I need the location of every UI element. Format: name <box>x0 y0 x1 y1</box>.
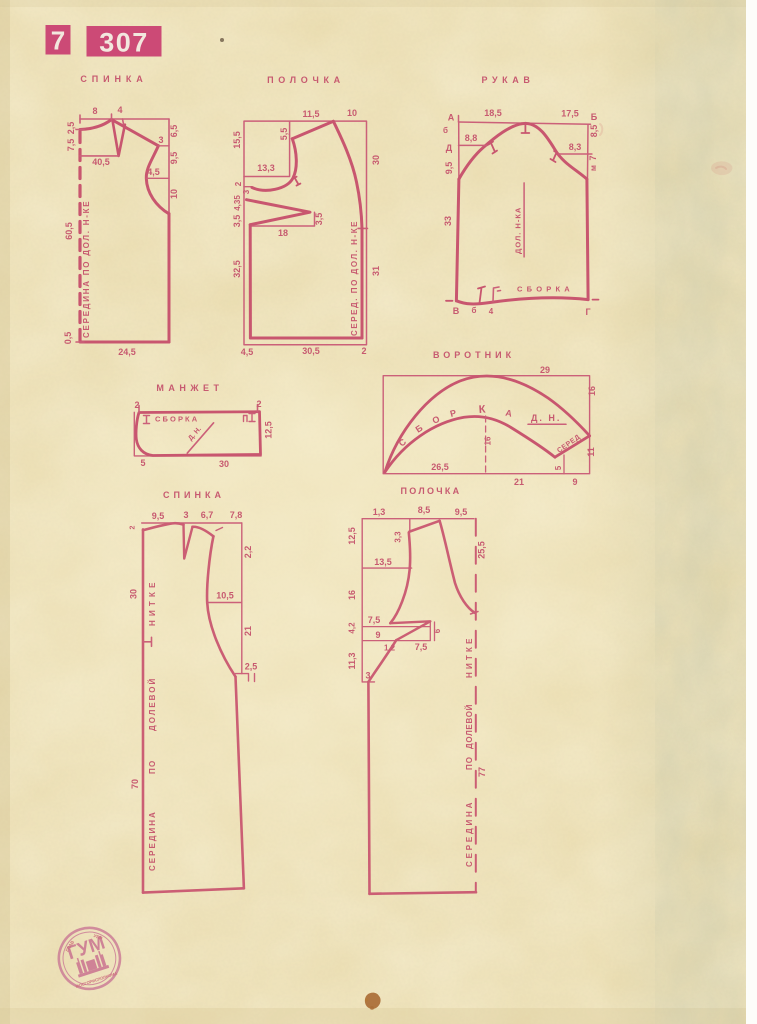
svg-text:НИТКЕ: НИТКЕ <box>148 578 157 626</box>
svg-text:10: 10 <box>169 189 179 199</box>
svg-text:31: 31 <box>371 266 381 276</box>
svg-text:7: 7 <box>51 26 65 56</box>
svg-text:4,35: 4,35 <box>233 195 242 211</box>
svg-text:10: 10 <box>347 108 357 118</box>
svg-text:9,5: 9,5 <box>444 162 454 175</box>
svg-text:40,5: 40,5 <box>92 157 110 167</box>
svg-text:ПОЛОЧКА: ПОЛОЧКА <box>401 486 462 496</box>
svg-text:1,3: 1,3 <box>373 507 386 517</box>
svg-text:9,5: 9,5 <box>455 507 468 517</box>
svg-text:32,5: 32,5 <box>232 260 242 278</box>
svg-text:70: 70 <box>130 779 140 789</box>
svg-text:4: 4 <box>489 307 494 316</box>
svg-text:2: 2 <box>130 525 137 529</box>
svg-text:4: 4 <box>117 105 122 115</box>
svg-text:15,5: 15,5 <box>232 131 242 149</box>
svg-text:Д. Н.: Д. Н. <box>531 413 561 423</box>
svg-text:2: 2 <box>134 400 139 410</box>
svg-text:30: 30 <box>219 459 229 469</box>
svg-text:ДОЛЕВОЙ: ДОЛЕВОЙ <box>465 704 474 749</box>
svg-text:7,5: 7,5 <box>66 139 76 152</box>
svg-text:11,3: 11,3 <box>347 652 357 669</box>
svg-text:307: 307 <box>99 28 149 58</box>
svg-text:9: 9 <box>572 477 577 487</box>
svg-text:В: В <box>453 306 460 316</box>
svg-text:6,5: 6,5 <box>169 125 179 138</box>
svg-text:РУКАВ: РУКАВ <box>482 75 535 85</box>
svg-text:8,5: 8,5 <box>589 125 599 138</box>
svg-text:6,7: 6,7 <box>201 510 214 520</box>
svg-text:5: 5 <box>140 458 145 468</box>
svg-text:ДОЛЕВОЙ: ДОЛЕВОЙ <box>148 677 157 731</box>
svg-text:3,3: 3,3 <box>394 531 403 543</box>
svg-text:МАНЖЕТ: МАНЖЕТ <box>156 383 223 393</box>
svg-text:СПИНКА: СПИНКА <box>80 74 147 84</box>
svg-text:НИТКЕ: НИТКЕ <box>465 635 474 678</box>
svg-text:ПО: ПО <box>465 756 474 770</box>
svg-text:9: 9 <box>375 630 380 640</box>
svg-text:21: 21 <box>243 626 253 636</box>
svg-text:3,5: 3,5 <box>232 215 242 228</box>
svg-text:м: м <box>589 165 598 171</box>
svg-text:ДОЛ. Н-КА: ДОЛ. Н-КА <box>514 207 523 254</box>
svg-text:Г: Г <box>585 307 590 317</box>
svg-text:8,5: 8,5 <box>418 505 431 515</box>
svg-text:16: 16 <box>587 386 597 396</box>
svg-text:6: 6 <box>433 628 442 633</box>
svg-text:77: 77 <box>477 767 487 777</box>
svg-text:9,5: 9,5 <box>152 511 165 521</box>
svg-text:4,2: 4,2 <box>348 622 357 634</box>
svg-text:2: 2 <box>361 346 366 356</box>
svg-text:4,5: 4,5 <box>241 347 254 357</box>
svg-text:25,5: 25,5 <box>477 541 487 559</box>
svg-text:29: 29 <box>540 365 550 375</box>
svg-text:ПО: ПО <box>148 760 157 774</box>
svg-text:4,5: 4,5 <box>147 167 160 177</box>
svg-text:8: 8 <box>92 106 97 116</box>
svg-text:5: 5 <box>554 465 563 470</box>
svg-text:3: 3 <box>365 671 370 681</box>
svg-text:1,2: 1,2 <box>384 644 396 653</box>
svg-text:11,5: 11,5 <box>302 109 319 119</box>
svg-text:30,5: 30,5 <box>302 346 320 356</box>
svg-text:б: б <box>443 126 448 135</box>
svg-text:21: 21 <box>514 477 524 487</box>
svg-text:3: 3 <box>183 510 188 520</box>
svg-text:2,2: 2,2 <box>243 546 253 559</box>
svg-text:26,5: 26,5 <box>431 462 449 472</box>
svg-text:А: А <box>448 113 455 123</box>
svg-text:СБОРКА: СБОРКА <box>155 415 199 424</box>
svg-text:12,5: 12,5 <box>264 421 274 439</box>
svg-text:8,8: 8,8 <box>465 133 478 143</box>
svg-text:3,5: 3,5 <box>314 213 324 226</box>
svg-text:13,3: 13,3 <box>257 163 275 173</box>
svg-text:60,5: 60,5 <box>64 222 74 240</box>
svg-text:К: К <box>478 404 486 416</box>
svg-text:2: 2 <box>256 399 261 409</box>
svg-text:9,5: 9,5 <box>169 152 179 165</box>
svg-text:8,3: 8,3 <box>569 142 582 152</box>
svg-text:ВОРОТНИК: ВОРОТНИК <box>433 350 515 360</box>
svg-text:3: 3 <box>242 189 251 194</box>
svg-text:18,5: 18,5 <box>484 108 502 118</box>
svg-text:11: 11 <box>586 447 596 457</box>
svg-text:2: 2 <box>234 181 243 186</box>
svg-text:2,5: 2,5 <box>245 662 258 672</box>
svg-text:12,5: 12,5 <box>347 527 357 545</box>
svg-text:СПИНКА: СПИНКА <box>163 490 225 500</box>
svg-text:б: б <box>472 306 477 315</box>
svg-text:СЕРЕДИНА ПО ДОЛ. Н-КЕ: СЕРЕДИНА ПО ДОЛ. Н-КЕ <box>82 200 91 338</box>
svg-text:16: 16 <box>484 436 493 445</box>
svg-text:18: 18 <box>278 228 288 238</box>
svg-text:7,5: 7,5 <box>415 642 428 652</box>
svg-text:7,5: 7,5 <box>368 615 381 625</box>
svg-text:СБОРКА: СБОРКА <box>517 285 574 294</box>
svg-text:7: 7 <box>588 155 598 160</box>
svg-text:30: 30 <box>129 589 139 599</box>
svg-text:16: 16 <box>347 590 357 600</box>
svg-text:17,5: 17,5 <box>561 109 579 119</box>
svg-text:3: 3 <box>158 135 163 145</box>
svg-text:ПОЛОЧКА: ПОЛОЧКА <box>267 75 345 85</box>
svg-text:СЕРЕДИНА: СЕРЕДИНА <box>148 810 157 871</box>
svg-text:13,5: 13,5 <box>374 557 392 567</box>
svg-text:7,8: 7,8 <box>230 510 243 520</box>
svg-text:10,5: 10,5 <box>216 591 234 601</box>
svg-text:2,5: 2,5 <box>66 122 76 135</box>
svg-text:24,5: 24,5 <box>118 347 136 357</box>
svg-text:Д: Д <box>446 143 453 153</box>
svg-text:5,5: 5,5 <box>279 128 289 141</box>
svg-text:СЕРЕДИНА: СЕРЕДИНА <box>465 800 474 867</box>
svg-text:30: 30 <box>371 155 381 165</box>
svg-text:0,5: 0,5 <box>63 332 73 345</box>
svg-text:33: 33 <box>443 216 453 226</box>
svg-text:СЕРЕД. ПО ДОЛ. Н-КЕ: СЕРЕД. ПО ДОЛ. Н-КЕ <box>350 220 359 336</box>
svg-text:Б: Б <box>591 112 598 122</box>
